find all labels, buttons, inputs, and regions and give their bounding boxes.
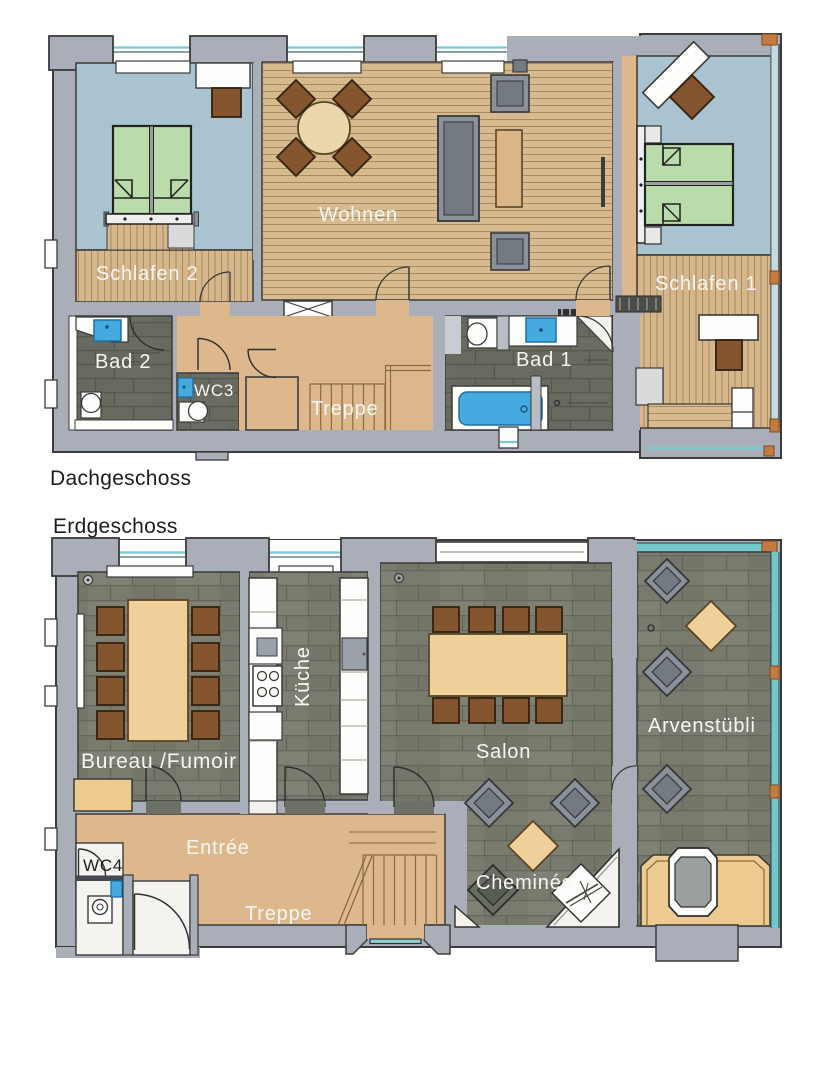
svg-text:Cheminée: Cheminée bbox=[476, 872, 574, 894]
svg-text:Entrée: Entrée bbox=[186, 837, 250, 859]
svg-text:Schlafen 1: Schlafen 1 bbox=[655, 273, 758, 295]
svg-text:Bad 2: Bad 2 bbox=[95, 351, 151, 373]
svg-text:Erdgeschoss: Erdgeschoss bbox=[53, 515, 178, 538]
svg-text:Bad 1: Bad 1 bbox=[516, 349, 572, 371]
svg-text:Treppe: Treppe bbox=[245, 903, 312, 925]
svg-text:Schlafen 2: Schlafen 2 bbox=[96, 263, 199, 285]
svg-text:Küche: Küche bbox=[292, 646, 314, 707]
svg-text:Arvenstübli: Arvenstübli bbox=[648, 715, 756, 737]
svg-text:Treppe: Treppe bbox=[311, 398, 378, 420]
svg-text:Salon: Salon bbox=[476, 741, 531, 763]
svg-text:WC4: WC4 bbox=[83, 856, 123, 875]
svg-text:Dachgeschoss: Dachgeschoss bbox=[50, 467, 191, 490]
svg-text:Wohnen: Wohnen bbox=[319, 204, 398, 226]
svg-text:Bureau /Fumoir: Bureau /Fumoir bbox=[81, 750, 237, 773]
svg-text:WC3: WC3 bbox=[194, 381, 234, 400]
